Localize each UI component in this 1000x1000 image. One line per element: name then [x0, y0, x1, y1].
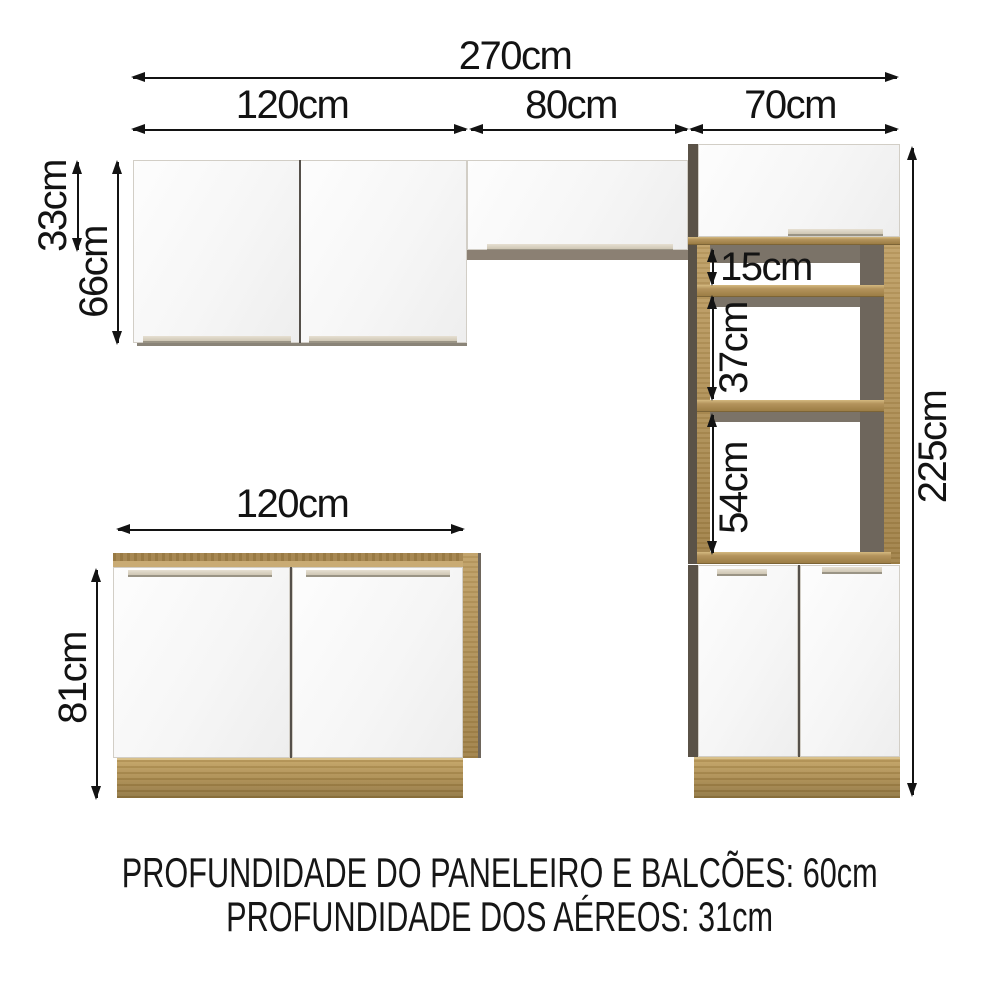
dim-arrow-total-width — [133, 77, 897, 79]
dim-label-base-width: 120cm — [192, 484, 392, 524]
dim-label-niche-bottom: 54cm — [714, 403, 756, 573]
door-handle — [128, 570, 272, 577]
wall-cabinet-left-door-2 — [300, 160, 467, 343]
door-handle — [788, 229, 883, 236]
dim-label-tall-width: 70cm — [690, 85, 890, 125]
cabinet-top-inner — [113, 553, 478, 561]
wall-cabinet-left — [133, 160, 467, 345]
door-divider — [798, 565, 800, 757]
tall-cabinet-bottom-door-2 — [800, 565, 900, 757]
depth-note-line-2: PROFUNDIDADE DOS AÉREOS: 31cm — [227, 895, 774, 939]
dim-arrow-wall-left-width — [133, 129, 466, 131]
dim-label-total-width: 270cm — [415, 36, 615, 76]
door-handle — [822, 567, 882, 574]
depth-note-row-2: PROFUNDIDADE DOS AÉREOS: 31cm — [0, 895, 1000, 939]
door-handle — [306, 570, 450, 577]
dim-label-total-height: 225cm — [913, 362, 955, 532]
dim-arrow-base-height — [96, 570, 98, 798]
dim-arrow-base-width — [118, 529, 463, 531]
door-handle — [309, 336, 457, 343]
toe-kick — [694, 757, 900, 798]
base-cabinet-door-2 — [292, 567, 463, 758]
door-handle — [143, 336, 291, 343]
door-divider — [299, 160, 301, 343]
wood-trim — [688, 237, 900, 245]
dim-arrow-tall-width — [691, 129, 897, 131]
side-panel — [463, 553, 478, 758]
tall-cabinet-side-edge — [688, 144, 698, 237]
depth-note-row-1: PROFUNDIDADE DO PANELEIRO E BALCÕES: 60c… — [0, 851, 1000, 895]
wall-cabinet-middle — [467, 160, 688, 260]
kitchen-dimension-diagram: 270cm 120cm 80cm 70cm 33cm 66cm — [0, 0, 1000, 1000]
dim-label-wall-mid-height: 33cm — [33, 121, 75, 291]
tall-cabinet-side-edge — [688, 245, 697, 564]
tall-cabinet-bottom-door-1 — [698, 565, 798, 757]
wall-cabinet-left-door-1 — [133, 160, 300, 343]
wall-cabinet-middle-door — [467, 160, 688, 250]
wood-stile-right — [884, 245, 900, 564]
door-divider — [290, 567, 292, 758]
dim-label-wall-mid-width: 80cm — [471, 85, 671, 125]
base-cabinet — [113, 553, 481, 798]
tall-cabinet-top-door — [698, 144, 900, 237]
toe-kick — [117, 758, 463, 798]
cabinet-bottom-panel — [467, 250, 688, 260]
tall-cabinet-side-edge — [688, 565, 698, 757]
depth-note-line-1: PROFUNDIDADE DO PANELEIRO E BALCÕES: 60c… — [122, 851, 878, 895]
base-cabinet-door-1 — [113, 567, 290, 758]
cabinet-bottom-shadow — [137, 343, 467, 346]
dim-label-base-height: 81cm — [53, 593, 95, 763]
dim-label-wall-left-width: 120cm — [192, 85, 392, 125]
dim-label-wall-left-height: 66cm — [74, 187, 116, 357]
side-panel-shadow — [478, 553, 481, 758]
dim-arrow-wall-left-height — [117, 162, 119, 343]
dim-arrow-wall-mid-width — [471, 129, 687, 131]
